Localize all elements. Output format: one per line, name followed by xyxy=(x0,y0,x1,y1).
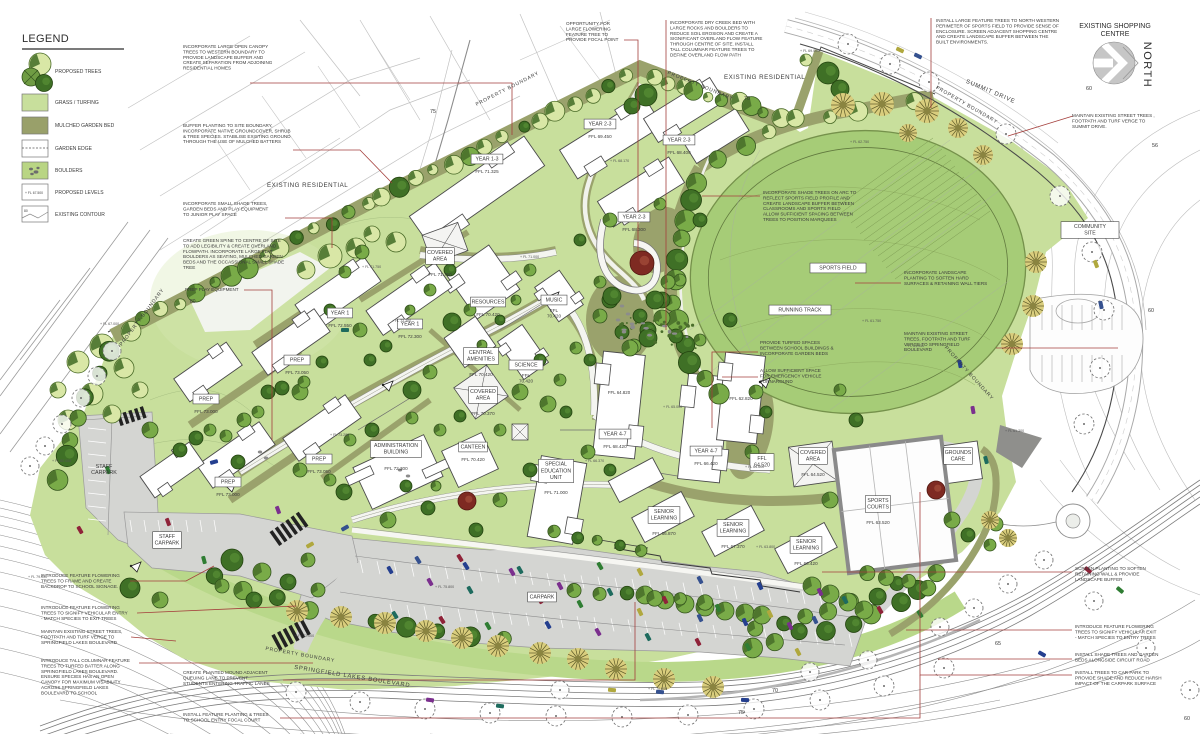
svg-text:+ FL 65.000: + FL 65.000 xyxy=(663,405,682,409)
svg-text:+ FL 67.000: + FL 67.000 xyxy=(100,322,119,326)
svg-text:YEAR 2-3: YEAR 2-3 xyxy=(588,121,611,127)
svg-text:60: 60 xyxy=(1086,86,1092,92)
svg-text:AREA: AREA xyxy=(433,257,448,263)
svg-text:FFL 73.050: FFL 73.050 xyxy=(307,469,331,474)
svg-text:CARPARK: CARPARK xyxy=(155,541,180,547)
svg-text:RUNNING TRACK: RUNNING TRACK xyxy=(778,307,822,313)
svg-text:BOULDERS: BOULDERS xyxy=(55,168,83,174)
svg-text:56: 56 xyxy=(1152,143,1158,149)
svg-text:AREA: AREA xyxy=(806,457,821,463)
svg-text:+ FL 69.000: + FL 69.000 xyxy=(800,49,819,53)
svg-text:SENIOR: SENIOR xyxy=(654,509,674,515)
svg-text:+ FL 63.800: + FL 63.800 xyxy=(756,545,775,549)
svg-text:MUSIC: MUSIC xyxy=(546,297,563,303)
svg-text:70: 70 xyxy=(744,96,750,102)
svg-text:PREP: PREP xyxy=(199,396,214,402)
svg-text:60: 60 xyxy=(1184,716,1190,722)
svg-text:80: 80 xyxy=(190,299,196,305)
svg-text:LEARNING: LEARNING xyxy=(720,529,747,535)
svg-text:EXISTING RESIDENTIAL: EXISTING RESIDENTIAL xyxy=(724,74,805,81)
svg-text:FFL 66.870: FFL 66.870 xyxy=(652,531,676,536)
svg-text:+ FL 80.000: + FL 80.000 xyxy=(52,459,71,463)
svg-text:CARPARK: CARPARK xyxy=(530,594,555,600)
svg-text:+ FL 61.950: + FL 61.950 xyxy=(905,344,924,348)
svg-text:COMMUNITY: COMMUNITY xyxy=(1074,224,1107,230)
svg-text:AMENITIES: AMENITIES xyxy=(467,357,495,363)
svg-text:PROPOSED LEVELS: PROPOSED LEVELS xyxy=(55,190,104,196)
svg-text:FFL 68.420: FFL 68.420 xyxy=(603,444,627,449)
svg-text:FFL 66.420: FFL 66.420 xyxy=(794,561,818,566)
svg-text:+ FL 68.170: + FL 68.170 xyxy=(610,159,629,163)
svg-text:SENIOR: SENIOR xyxy=(796,539,816,545)
svg-text:+ FL 62.750: + FL 62.750 xyxy=(850,140,869,144)
svg-text:FFL: FFL xyxy=(757,456,766,462)
svg-text:+ FL 71.750: + FL 71.750 xyxy=(362,265,381,269)
svg-text:FFL 71.750: FFL 71.750 xyxy=(428,272,452,277)
svg-text:PREP: PREP xyxy=(221,479,236,485)
svg-text:FFL 69.450: FFL 69.450 xyxy=(588,134,612,139)
svg-text:PREP: PREP xyxy=(312,456,327,462)
svg-text:ADMINISTRATION: ADMINISTRATION xyxy=(374,443,418,449)
svg-text:FFL 63.520: FFL 63.520 xyxy=(866,520,890,525)
svg-text:STAFF: STAFF xyxy=(159,534,175,540)
svg-text:INTRODUCE FEATURE FLOWERINGTRE: INTRODUCE FEATURE FLOWERINGTREES TO FRAM… xyxy=(41,573,120,589)
svg-text:+ FL 73.280: + FL 73.280 xyxy=(330,433,349,437)
svg-text:+ FL 61.300: + FL 61.300 xyxy=(1005,429,1024,433)
svg-text:FFL 68.400: FFL 68.400 xyxy=(667,150,691,155)
svg-text:INSTALL SHADE TREES AND GARDEN: INSTALL SHADE TREES AND GARDENBEDS ALONG… xyxy=(1075,652,1158,662)
svg-text:INTRODUCE FEATURE FLOWERINGTRE: INTRODUCE FEATURE FLOWERINGTREES TO SIGN… xyxy=(1075,624,1157,640)
svg-text:YEAR 1: YEAR 1 xyxy=(331,310,350,316)
svg-text:YEAR 4-7: YEAR 4-7 xyxy=(694,448,717,454)
svg-text:+ FL 75.800: + FL 75.800 xyxy=(435,585,454,589)
svg-text:CARE: CARE xyxy=(951,457,966,463)
svg-text:FFL 73.050: FFL 73.050 xyxy=(285,370,309,375)
svg-text:+ FL 72.000: + FL 72.000 xyxy=(295,634,314,638)
svg-text:FFL 73.000: FFL 73.000 xyxy=(194,409,218,414)
svg-text:+ FL 70.000: + FL 70.000 xyxy=(648,687,667,691)
svg-text:FFL 64.820: FFL 64.820 xyxy=(608,390,631,395)
svg-text:FFL 70.370: FFL 70.370 xyxy=(471,411,495,416)
svg-text:YEAR 1-3: YEAR 1-3 xyxy=(475,156,498,162)
svg-text:GROUNDS: GROUNDS xyxy=(945,450,972,456)
svg-text:PREP: PREP xyxy=(290,357,305,363)
svg-text:SPORTS FIELD: SPORTS FIELD xyxy=(819,265,857,271)
svg-text:MULCHED GARDEN BED: MULCHED GARDEN BED xyxy=(55,123,115,129)
svg-text:FFL 70.420: FFL 70.420 xyxy=(476,312,500,317)
svg-text:FFL 71.000: FFL 71.000 xyxy=(544,490,568,495)
svg-text:INTRODUCE FEATURE FLOWERINGTRE: INTRODUCE FEATURE FLOWERINGTREES TO SIGN… xyxy=(41,605,128,621)
svg-text:SPECIAL: SPECIAL xyxy=(545,462,567,468)
svg-text:FFL 72.550: FFL 72.550 xyxy=(328,323,352,328)
svg-text:65: 65 xyxy=(995,641,1001,647)
svg-text:FFL 66.420: FFL 66.420 xyxy=(694,461,718,466)
svg-text:COVERED: COVERED xyxy=(427,250,453,256)
svg-text:FFL 67.370: FFL 67.370 xyxy=(721,544,745,549)
svg-text:LEARNING: LEARNING xyxy=(793,546,820,552)
svg-text:PROPOSED TREES: PROPOSED TREES xyxy=(55,69,102,75)
svg-text:60: 60 xyxy=(1148,308,1154,314)
svg-text:+ FL 64.600: + FL 64.600 xyxy=(745,465,764,469)
svg-text:CANTEEN: CANTEEN xyxy=(461,444,486,450)
svg-text:INSTALL FEATURE PLANTING & TRE: INSTALL FEATURE PLANTING & TREESTO SCHOO… xyxy=(183,712,269,722)
svg-text:AREA: AREA xyxy=(476,396,491,402)
svg-text:LEGEND: LEGEND xyxy=(22,33,69,45)
svg-text:NORTH: NORTH xyxy=(1141,42,1153,88)
svg-text:FFL 73.000: FFL 73.000 xyxy=(216,492,240,497)
svg-text:FFL 64.520: FFL 64.520 xyxy=(801,472,825,477)
svg-text:FFL 70.420: FFL 70.420 xyxy=(461,457,485,462)
svg-text:SENIOR: SENIOR xyxy=(723,522,743,528)
svg-text:PREP PLAY EQUIPMENT: PREP PLAY EQUIPMENT xyxy=(185,287,239,292)
svg-text:YEAR 2-3: YEAR 2-3 xyxy=(667,137,690,143)
svg-text:SCIENCE: SCIENCE xyxy=(514,362,538,368)
svg-text:+ FL 66.370: + FL 66.370 xyxy=(585,459,604,463)
svg-text:+ FL 79.000: + FL 79.000 xyxy=(28,575,47,579)
svg-text:+ FL 72.300: + FL 72.300 xyxy=(392,319,411,323)
svg-text:FFL 70.420: FFL 70.420 xyxy=(469,372,493,377)
svg-text:COURTS: COURTS xyxy=(867,505,889,511)
svg-text:GARDEN EDGE: GARDEN EDGE xyxy=(55,146,93,152)
svg-text:COVERED: COVERED xyxy=(470,389,496,395)
svg-text:FFL 62.820: FFL 62.820 xyxy=(729,396,753,401)
svg-text:MAINTAIN EXISTING STREET TREES: MAINTAIN EXISTING STREET TREES,FOOTPATH … xyxy=(41,629,122,645)
svg-text:YEAR 2-3: YEAR 2-3 xyxy=(622,214,645,220)
svg-text:CENTRAL: CENTRAL xyxy=(469,350,493,356)
svg-text:RESOURCES: RESOURCES xyxy=(472,299,505,305)
svg-text:BUILDING: BUILDING xyxy=(384,450,409,456)
svg-text:EDUCATION: EDUCATION xyxy=(541,468,571,474)
svg-text:75: 75 xyxy=(738,710,744,716)
svg-text:80: 80 xyxy=(24,209,28,213)
svg-text:+ FL 71.000: + FL 71.000 xyxy=(520,255,539,259)
svg-text:SPORTS: SPORTS xyxy=(867,498,889,504)
svg-text:70: 70 xyxy=(772,688,778,694)
svg-text:SITE: SITE xyxy=(1084,231,1096,237)
svg-text:75: 75 xyxy=(430,109,436,115)
svg-text:FFL 71.325: FFL 71.325 xyxy=(475,169,499,174)
svg-text:COVERED: COVERED xyxy=(800,450,826,456)
svg-text:UNIT: UNIT xyxy=(550,475,563,481)
svg-text:YEAR 4-7: YEAR 4-7 xyxy=(603,431,626,437)
svg-text:EXISTING CONTOUR: EXISTING CONTOUR xyxy=(55,212,105,218)
svg-text:+ FL 67.500: + FL 67.500 xyxy=(25,191,43,195)
svg-text:FFL 68.300: FFL 68.300 xyxy=(622,227,646,232)
svg-text:LEARNING: LEARNING xyxy=(651,516,678,522)
svg-text:+ FL 61.750: + FL 61.750 xyxy=(862,319,881,323)
svg-text:FFL 72.300: FFL 72.300 xyxy=(384,466,408,471)
svg-text:FFL 72.300: FFL 72.300 xyxy=(398,334,422,339)
svg-text:EXISTING RESIDENTIAL: EXISTING RESIDENTIAL xyxy=(267,182,348,189)
svg-text:INSTALL TREES TO CAR PARK TOPR: INSTALL TREES TO CAR PARK TOPROVIDE SHAD… xyxy=(1075,670,1162,686)
svg-text:GRASS / TURFING: GRASS / TURFING xyxy=(55,100,99,106)
